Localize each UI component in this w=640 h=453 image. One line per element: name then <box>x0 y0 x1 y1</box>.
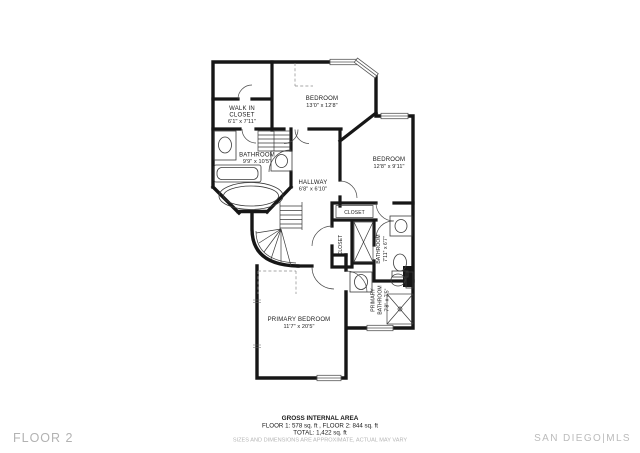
bathtub <box>214 165 261 182</box>
primary-bathroom-label: PRIMARY <box>371 288 377 312</box>
soaking-tub <box>219 183 283 210</box>
hallway-dims: 6'8" x 6'10" <box>299 187 327 193</box>
walk-in-closet-label: WALK IN <box>229 106 255 112</box>
walk-in-closet-label2: CLOSET <box>229 113 254 119</box>
bedroom-top-label: BEDROOM <box>306 96 338 102</box>
walk-in-closet-dims: 6'1" x 7'11" <box>228 119 256 125</box>
primary-bedroom-dims: 11'7" x 20'5" <box>283 324 314 330</box>
floor-plan-drawing: WALK IN CLOSET 6'1" x 7'11" BEDROOM 13'0… <box>0 0 640 453</box>
stair-upper-flight <box>258 131 290 151</box>
vanity-sink <box>350 272 372 292</box>
floor-plan-page: WALK IN CLOSET 6'1" x 7'11" BEDROOM 13'0… <box>0 0 640 453</box>
primary-bedroom-label: PRIMARY BEDROOM <box>268 317 331 323</box>
bedroom-right-label: BEDROOM <box>373 157 405 163</box>
footer-title: GROSS INTERNAL AREA <box>282 415 359 422</box>
hallway-label: HALLWAY <box>299 180 328 186</box>
window <box>330 59 357 64</box>
window <box>367 325 393 330</box>
bathroom-right-dims: 7'11" x 6'7" <box>383 236 389 262</box>
primary-bathroom-label2: BATHROOM <box>378 285 384 314</box>
window <box>381 113 408 118</box>
floor-number-label: FLOOR 2 <box>13 431 74 445</box>
bathroom-left-dims: 9'9" x 10'5" <box>243 159 271 165</box>
bedroom-right-dims: 12'8" x 9'11" <box>373 164 404 170</box>
closet-top-label: CLOSET <box>344 210 365 216</box>
door-arc <box>242 129 256 143</box>
door-arc <box>312 267 334 289</box>
mls-brand-watermark: SAN DIEGO|MLS <box>534 433 631 444</box>
window <box>317 375 341 380</box>
shower <box>387 294 413 324</box>
bathroom-left-label: BATHROOM <box>239 153 275 159</box>
closet-side-label: CLOSET <box>338 235 344 256</box>
footer-total-area: TOTAL: 1,422 sq. ft <box>293 430 347 437</box>
window <box>354 58 378 78</box>
footer-disclaimer: SIZES AND DIMENSIONS ARE APPROXIMATE, AC… <box>233 438 408 444</box>
vanity-sink <box>214 131 236 160</box>
wall-mass <box>403 266 414 287</box>
door-arc <box>340 181 357 198</box>
footer-floor-areas: FLOOR 1: 578 sq. ft , FLOOR 2: 844 sq. f… <box>262 423 378 430</box>
door-arc <box>295 130 309 144</box>
door-arc <box>376 203 394 221</box>
door-arc <box>238 85 252 99</box>
vanity-sink <box>390 216 412 236</box>
footer-area-summary: GROSS INTERNAL AREA FLOOR 1: 578 sq. ft … <box>233 415 408 444</box>
shower <box>354 222 373 262</box>
door-arc <box>312 226 332 246</box>
bathroom-right-label: BATHROOM <box>376 234 382 263</box>
primary-bathroom-dims: 7'8" x 7'5" <box>385 288 391 311</box>
bedroom-top-dims: 13'0" x 12'8" <box>306 103 337 109</box>
